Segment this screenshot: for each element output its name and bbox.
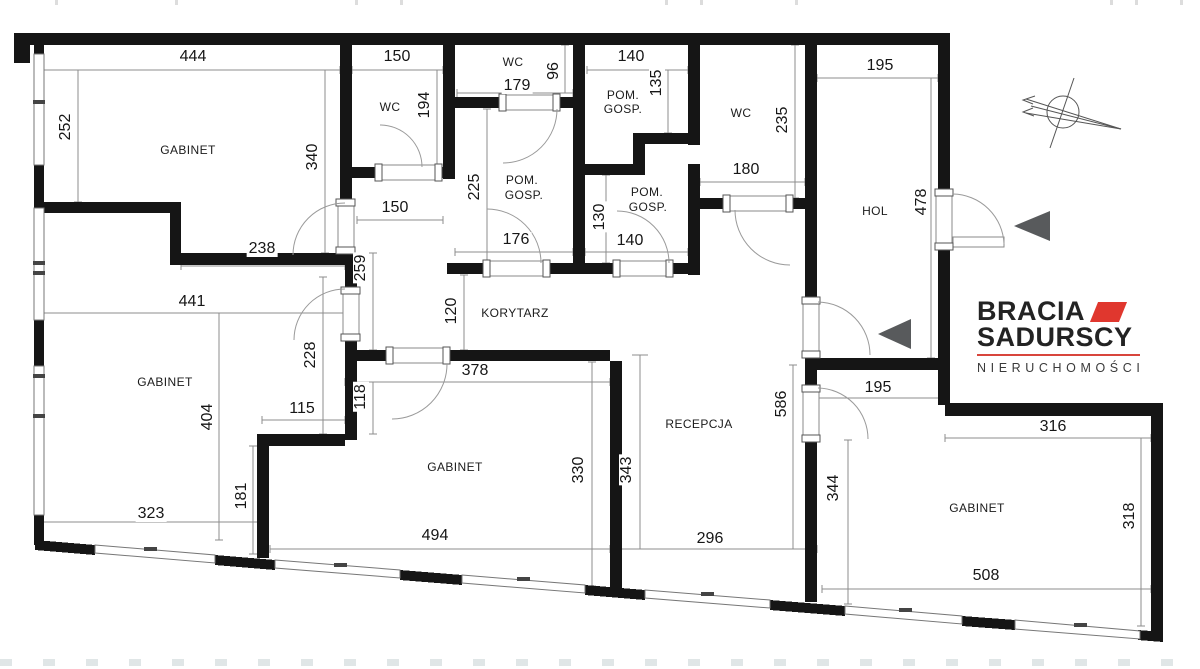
dim-330: 330: [571, 455, 587, 486]
dim-118: 118: [353, 382, 369, 412]
dim-180: 180: [731, 162, 762, 178]
dim-238: 238: [247, 241, 278, 257]
dim-194: 194: [417, 90, 433, 121]
dim-140a: 140: [616, 49, 647, 65]
dim-494: 494: [420, 528, 451, 544]
dim-252: 252: [58, 112, 74, 143]
dim-340: 340: [305, 142, 321, 173]
room-label-gabinet-bottom-right: GABINET: [949, 502, 1004, 514]
scan-artifact-strip: [0, 659, 1200, 666]
room-label-gosp-2: GOSP.: [505, 189, 543, 201]
dim-343: 343: [619, 455, 635, 486]
room-label-gosp-3: GOSP.: [629, 201, 667, 213]
scan-artifacts: [55, 0, 1183, 5]
dim-176: 176: [501, 232, 532, 248]
dim-115: 115: [287, 401, 317, 417]
north-arrow-icon: [1023, 78, 1121, 148]
dim-130: 130: [592, 202, 608, 233]
dim-150b: 150: [380, 200, 411, 216]
dim-296: 296: [695, 531, 726, 547]
dim-150a: 150: [382, 49, 413, 65]
dim-181: 181: [234, 481, 250, 512]
dim-235: 235: [775, 105, 791, 136]
room-label-wc-2: WC: [503, 56, 524, 68]
dim-225: 225: [467, 172, 483, 203]
logo-line2: SADURSCY: [977, 325, 1153, 351]
room-label-gabinet-top-left: GABINET: [160, 144, 215, 156]
room-label-pom-2: POM.: [506, 174, 538, 186]
room-label-gabinet-mid-left: GABINET: [137, 376, 192, 388]
dim-228: 228: [303, 340, 319, 371]
room-label-pom-1: POM.: [607, 89, 639, 101]
company-logo: BRACIA SADURSCY NIERUCHOMOŚCI: [977, 299, 1153, 375]
dim-120: 120: [444, 296, 460, 327]
dim-195b: 195: [863, 380, 894, 396]
room-label-gabinet-middle: GABINET: [427, 461, 482, 473]
dim-96: 96: [546, 60, 562, 82]
dim-378: 378: [460, 363, 491, 379]
dim-441: 441: [177, 294, 208, 310]
dim-140b: 140: [615, 233, 646, 249]
room-label-wc-1: WC: [380, 101, 401, 113]
room-label-pom-3: POM.: [631, 186, 663, 198]
dim-316: 316: [1038, 419, 1069, 435]
logo-red-slab-icon: [1090, 302, 1127, 322]
dim-318: 318: [1122, 501, 1138, 532]
dim-508: 508: [971, 568, 1002, 584]
room-label-gosp-1: GOSP.: [604, 103, 642, 115]
floorplan-page: GABINET GABINET GABINET GABINET WC WC WC…: [0, 0, 1200, 669]
dim-404: 404: [200, 402, 216, 433]
dim-323: 323: [136, 506, 167, 522]
dim-478: 478: [914, 187, 930, 218]
logo-line3: NIERUCHOMOŚCI: [977, 361, 1153, 375]
room-label-hol: HOL: [862, 205, 888, 217]
dim-444: 444: [178, 49, 209, 65]
room-label-recepcja: RECEPCJA: [665, 418, 732, 430]
room-label-korytarz: KORYTARZ: [481, 307, 548, 319]
windows: [34, 54, 1140, 639]
logo-divider: [977, 354, 1140, 356]
dim-195a: 195: [865, 58, 896, 74]
logo-line1: BRACIA: [977, 299, 1085, 325]
dim-344: 344: [826, 473, 842, 504]
dim-259: 259: [353, 253, 369, 284]
dim-586: 586: [774, 389, 790, 420]
dim-135: 135: [649, 68, 665, 99]
room-label-wc-3: WC: [731, 107, 752, 119]
dim-179: 179: [502, 78, 533, 94]
